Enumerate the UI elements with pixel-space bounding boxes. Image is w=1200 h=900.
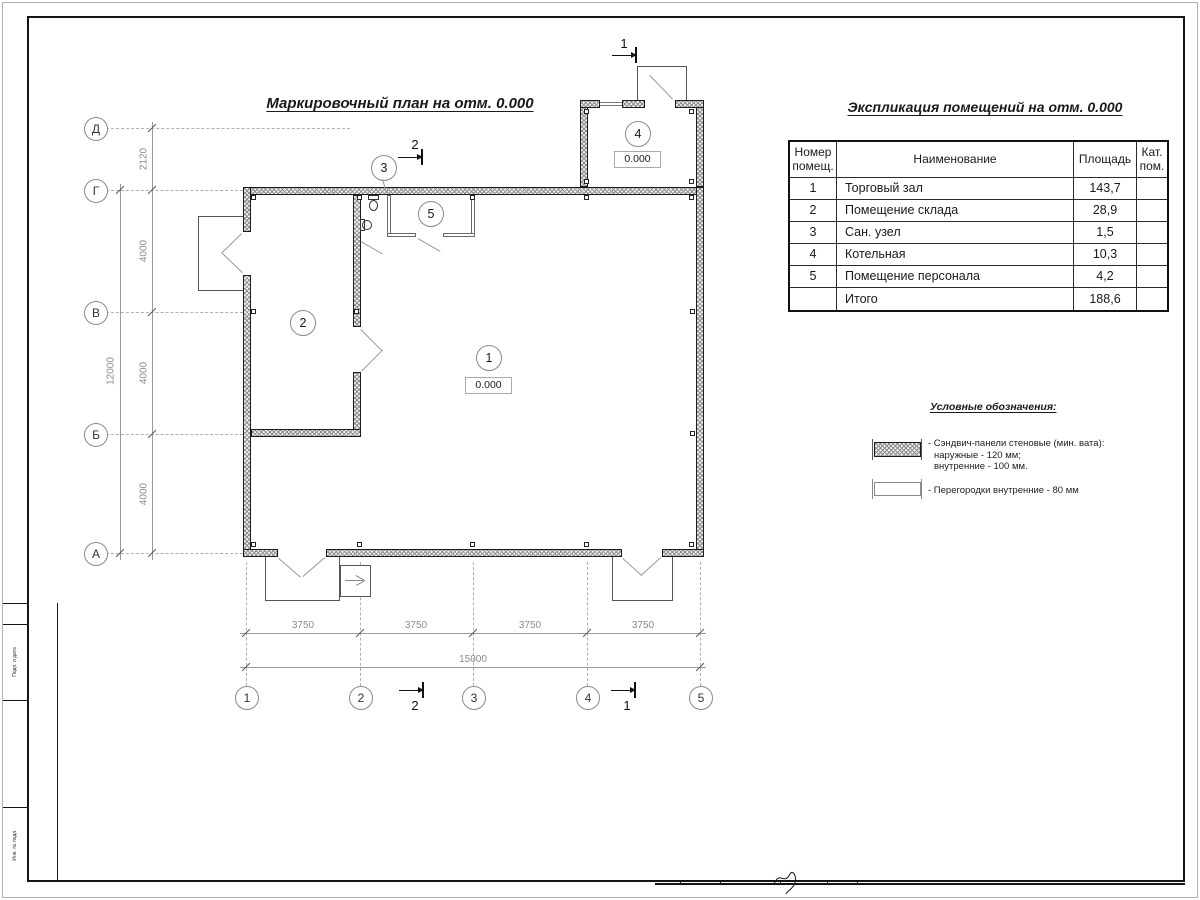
drawing-sheet: Подп. и дата Инв. № подл. Маркировочный … [0, 0, 1200, 900]
axis-line-v [106, 312, 243, 313]
strip-inner-line [57, 603, 58, 882]
column-marker [354, 309, 359, 314]
axis-line-d [106, 128, 350, 129]
table-cell-cat [1137, 222, 1167, 244]
legend-swatch-endcap [872, 439, 873, 460]
boiler-window [600, 102, 622, 103]
section-1-arrow-top [612, 55, 632, 56]
explication-title: Экспликация помещений на отм. 0.000 [825, 99, 1145, 115]
stamp-tick [827, 880, 828, 884]
strip-divider [3, 624, 27, 625]
column-marker [584, 542, 589, 547]
dim-label-overall: 15000 [459, 654, 487, 665]
table-cell-area: 4,2 [1074, 266, 1137, 288]
dim-line-left-overall [120, 184, 121, 560]
bottom-right-porch-outline [672, 557, 673, 601]
table-cell-area: 1,5 [1074, 222, 1137, 244]
table-cell-cat [1137, 178, 1167, 200]
bottom-left-porch-outline [265, 600, 340, 601]
table-total-label: Итого [837, 288, 1074, 310]
table-cell-cat [1137, 244, 1167, 266]
axis-bubble-2: 2 [349, 686, 373, 710]
table-cell-num: 5 [790, 266, 837, 288]
left-porch-outline [198, 290, 243, 291]
legend-swatch-endcap [872, 479, 873, 499]
bottom-right-porch-outline [612, 557, 613, 601]
dim-label: 3750 [632, 620, 654, 631]
dim-label: 2120 [139, 148, 150, 170]
column-marker [251, 309, 256, 314]
partition-toilet-right [387, 195, 391, 237]
plan-title: Маркировочный план на отм. 0.000 [250, 95, 550, 112]
entrance-arrow-box [340, 565, 371, 597]
dim-label: 4000 [139, 483, 150, 505]
column-marker [357, 542, 362, 547]
sink-bowl [362, 220, 372, 230]
column-marker [470, 195, 475, 200]
section-2-tick-top [421, 149, 423, 165]
wc-bowl [369, 200, 378, 211]
table-cell-num: 2 [790, 200, 837, 222]
boiler-window [600, 105, 622, 106]
wall-boiler-right [696, 100, 704, 187]
section-2-label-bottom: 2 [408, 698, 422, 713]
wall-left-upper [243, 187, 251, 232]
table-cell-name: Помещение склада [837, 200, 1074, 222]
section-2-tick-bottom [422, 682, 424, 698]
dim-label: 3750 [292, 620, 314, 631]
wall-room2-right-upper [353, 195, 361, 327]
column-marker [690, 431, 695, 436]
stamp-top-line [655, 883, 1185, 885]
room-bubble-3: 3 [371, 155, 397, 181]
wall-boiler-top-seg2 [622, 100, 645, 108]
boiler-vestibule-outline [637, 66, 687, 67]
wall-room2-bottom [251, 429, 361, 437]
boiler-vestibule-outline [686, 66, 687, 101]
column-marker [584, 195, 589, 200]
dim-label: 3750 [405, 620, 427, 631]
wall-bottom-seg1 [243, 549, 278, 557]
axis-bubble-b: Б [84, 423, 108, 447]
table-cell-name: Торговый зал [837, 178, 1074, 200]
elevation-label-room1: 0.000 [465, 377, 512, 394]
table-total-num [790, 288, 837, 310]
wall-boiler-top-seg1 [580, 100, 600, 108]
table-cell-num: 3 [790, 222, 837, 244]
elevation-label-room4: 0.000 [614, 151, 661, 168]
wall-room2-right-lower [353, 372, 361, 437]
axis-bubble-5: 5 [689, 686, 713, 710]
column-marker [689, 542, 694, 547]
axis-bubble-3: 3 [462, 686, 486, 710]
partition-room5-bottom-left [387, 233, 416, 237]
column-marker [357, 195, 362, 200]
column-marker [690, 309, 695, 314]
legend-swatch-sandwich-panel [874, 442, 921, 457]
section-1-tick-bottom [634, 682, 636, 698]
table-cell-cat [1137, 266, 1167, 288]
legend-swatch-endcap [921, 479, 922, 499]
table-total-area: 188,6 [1074, 288, 1137, 310]
axis-bubble-a: А [84, 542, 108, 566]
column-marker [584, 109, 589, 114]
wall-left-lower [243, 275, 251, 557]
legend-swatch-partition [874, 482, 921, 496]
titleblock-side-label: Инв. № подл. [12, 829, 18, 860]
section-2-arrow-top [398, 157, 418, 158]
dim-label: 4000 [139, 240, 150, 262]
section-1-arrow-bottom [611, 690, 631, 691]
stamp-tick [680, 880, 681, 884]
table-cell-cat [1137, 200, 1167, 222]
strip-divider [3, 807, 27, 808]
legend-item2: - Перегородки внутренние - 80 мм [928, 485, 1079, 496]
left-porch-outline [198, 216, 243, 217]
dim-label: 4000 [139, 362, 150, 384]
axis-bubble-1: 1 [235, 686, 259, 710]
axis-bubble-g: Г [84, 179, 108, 203]
boiler-vestibule-outline [637, 66, 638, 100]
room-bubble-2: 2 [290, 310, 316, 336]
room-bubble-5: 5 [418, 201, 444, 227]
partition-room5-right [471, 195, 475, 237]
column-marker [251, 542, 256, 547]
column-marker [251, 195, 256, 200]
legend-title: Условные обозначения: [930, 401, 1057, 413]
bottom-right-porch-outline [612, 600, 673, 601]
strip-divider [3, 700, 27, 701]
dim-line-bottom-overall [240, 667, 706, 668]
wall-bottom-seg2 [326, 549, 622, 557]
explication-table: Номер помещ. Наименование Площадь Кат. п… [788, 140, 1169, 312]
table-total-cat [1137, 288, 1167, 310]
axis-line-g [106, 190, 243, 191]
bottom-left-porch-outline [265, 557, 266, 601]
column-marker [584, 179, 589, 184]
wall-top [243, 187, 704, 195]
entrance-arrow-shaft [345, 580, 363, 581]
wall-boiler-left [580, 107, 588, 187]
table-cell-area: 28,9 [1074, 200, 1137, 222]
wall-bottom-seg3 [662, 549, 704, 557]
stamp-tick [720, 880, 721, 884]
table-cell-area: 10,3 [1074, 244, 1137, 266]
legend-item1-line3: внутренние - 100 мм. [934, 461, 1028, 472]
table-cell-name: Котельная [837, 244, 1074, 266]
table-header-number: Номер помещ. [790, 142, 837, 178]
table-header-cat: Кат. пом. [1137, 142, 1167, 178]
left-porch-outline [198, 216, 199, 291]
axis-bubble-4: 4 [576, 686, 600, 710]
room-bubble-4: 4 [625, 121, 651, 147]
stamp-tick [857, 880, 858, 884]
wall-boiler-top-seg3 [675, 100, 704, 108]
section-1-label-bottom: 1 [620, 698, 634, 713]
partition-room5-bottom-right [443, 233, 475, 237]
section-1-label-top: 1 [617, 36, 631, 51]
table-header-name: Наименование [837, 142, 1074, 178]
column-marker [689, 195, 694, 200]
column-marker [689, 179, 694, 184]
room-bubble-1: 1 [476, 345, 502, 371]
section-2-label-top: 2 [408, 137, 422, 152]
legend-swatch-endcap [921, 439, 922, 460]
table-cell-num: 4 [790, 244, 837, 266]
section-2-arrow-bottom [399, 690, 419, 691]
axis-line-a [106, 553, 243, 554]
table-header-area: Площадь [1074, 142, 1137, 178]
titleblock-side-label: Подп. и дата [12, 647, 18, 676]
table-cell-num: 1 [790, 178, 837, 200]
dim-label-overall: 12000 [106, 357, 117, 385]
legend-item1-line1: - Сэндвич-панели стеновые (мин. вата): [928, 438, 1104, 449]
table-cell-name: Сан. узел [837, 222, 1074, 244]
column-marker [689, 109, 694, 114]
signature-squiggle [770, 868, 810, 896]
section-1-tick-top [635, 47, 637, 63]
axis-line-b [106, 434, 243, 435]
axis-bubble-d: Д [84, 117, 108, 141]
dim-label: 3750 [519, 620, 541, 631]
table-cell-name: Помещение персонала [837, 266, 1074, 288]
column-marker [470, 542, 475, 547]
legend-item1-line2: наружные - 120 мм; [934, 450, 1021, 461]
axis-bubble-v: В [84, 301, 108, 325]
strip-divider [3, 603, 27, 604]
table-cell-area: 143,7 [1074, 178, 1137, 200]
wall-right [696, 187, 704, 557]
